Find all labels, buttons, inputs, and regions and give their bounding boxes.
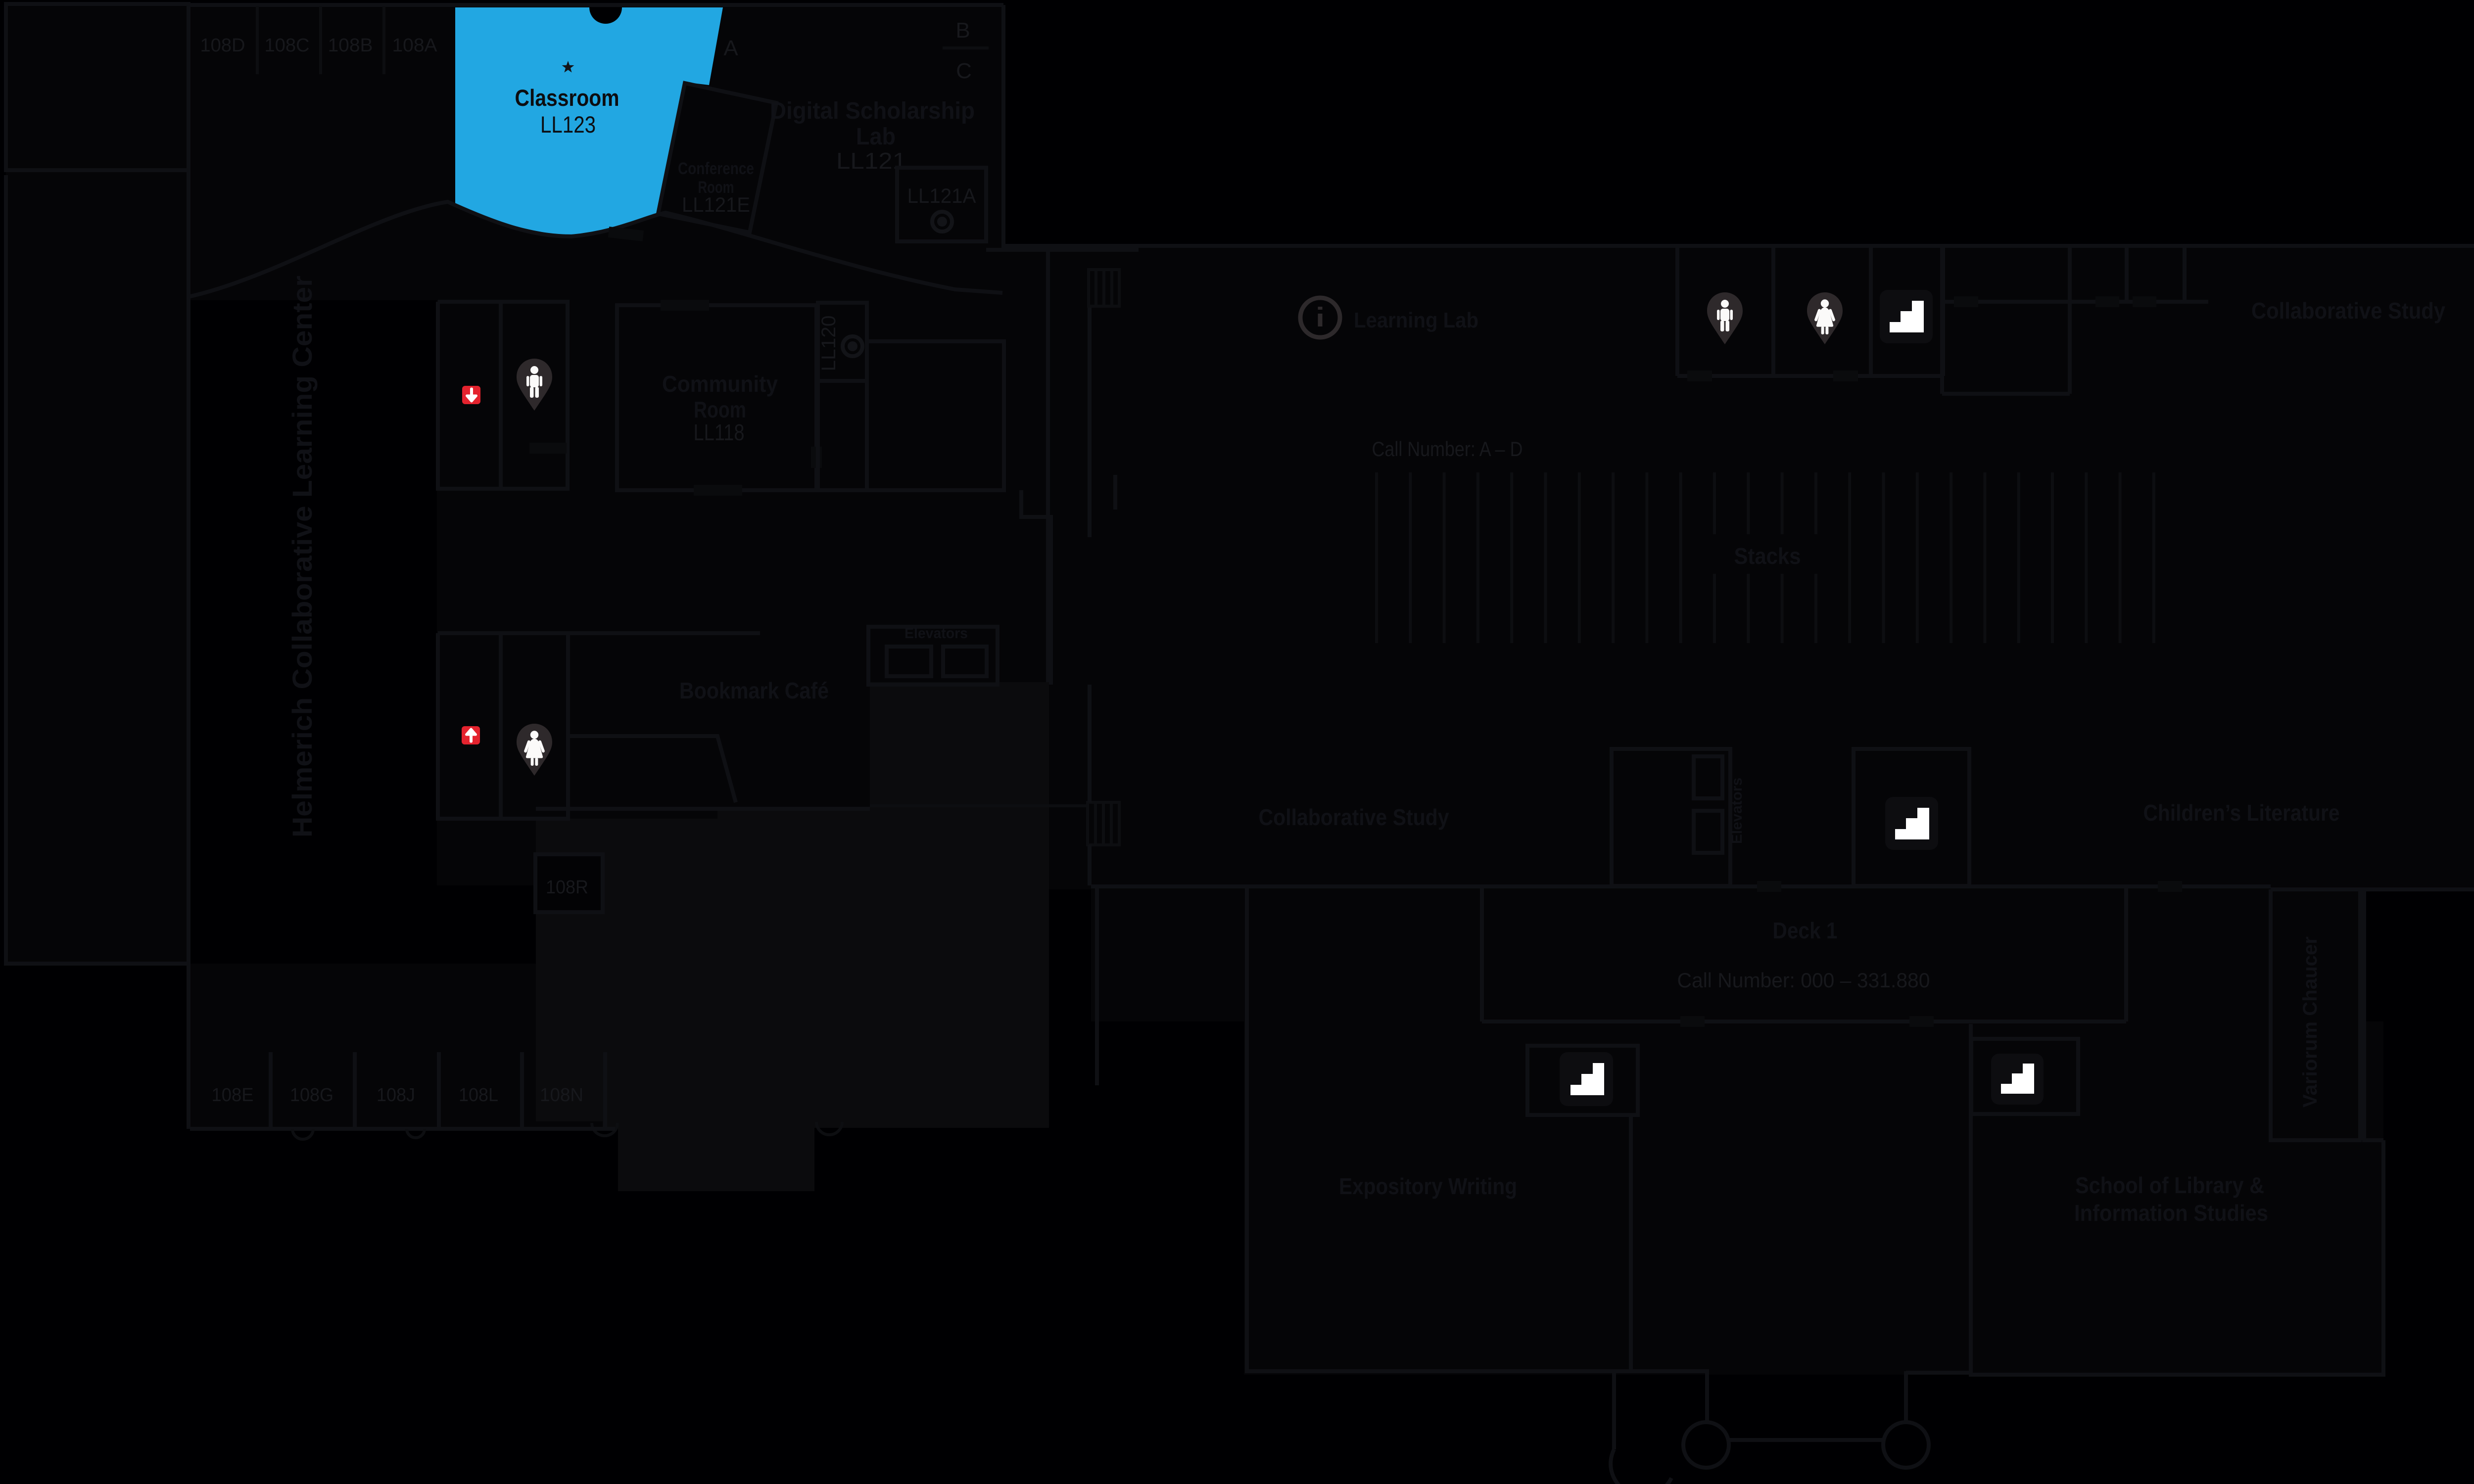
svg-text:Digital Scholarship: Digital Scholarship [770,98,975,124]
svg-text:Helmerich Collaborative Learni: Helmerich Collaborative Learning Center [286,276,318,837]
svg-text:A: A [723,36,738,60]
svg-text:B: B [955,18,970,43]
svg-text:Learning Lab: Learning Lab [1354,308,1478,332]
svg-text:Elevators: Elevators [904,625,968,642]
svg-text:Classroom: Classroom [515,85,619,111]
svg-text:School of Library &: School of Library & [2075,1172,2264,1198]
svg-text:LL121A: LL121A [907,184,976,207]
svg-text:Call Number: 000 – 331.880: Call Number: 000 – 331.880 [1677,969,1930,992]
svg-text:Stacks: Stacks [1734,543,1801,569]
svg-text:Bookmark Café: Bookmark Café [679,678,829,703]
svg-text:Children’s Literature: Children’s Literature [2143,800,2340,826]
svg-text:108N: 108N [540,1085,583,1106]
svg-text:108B: 108B [328,35,373,56]
svg-text:Elevators: Elevators [1729,778,1745,844]
svg-text:108E: 108E [212,1085,254,1106]
svg-text:Collaborative Study: Collaborative Study [1259,804,1449,830]
svg-text:Expository Writing: Expository Writing [1339,1173,1517,1199]
svg-text:108G: 108G [290,1085,333,1106]
svg-text:108C: 108C [265,35,310,56]
svg-text:108J: 108J [377,1085,415,1106]
svg-text:Information Studies: Information Studies [2074,1200,2268,1226]
svg-text:Collaborative Study: Collaborative Study [2251,298,2445,324]
svg-text:Conference: Conference [678,159,754,178]
svg-text:Call Number: A – D: Call Number: A – D [1372,437,1523,461]
svg-text:Deck 1: Deck 1 [1773,918,1838,943]
svg-text:C: C [956,59,972,83]
svg-text:Community: Community [662,371,778,397]
svg-text:Room: Room [694,397,746,422]
svg-text:LL123: LL123 [540,111,596,138]
svg-text:Lab: Lab [856,124,896,150]
svg-text:LL121E: LL121E [682,193,750,216]
svg-text:LL118: LL118 [694,419,745,445]
svg-text:LL120: LL120 [818,316,840,371]
svg-text:108D: 108D [200,35,245,56]
svg-text:108L: 108L [459,1085,498,1106]
svg-text:Variorum Chaucer: Variorum Chaucer [2299,936,2321,1108]
svg-text:108R: 108R [546,877,588,898]
svg-text:108A: 108A [392,35,438,56]
